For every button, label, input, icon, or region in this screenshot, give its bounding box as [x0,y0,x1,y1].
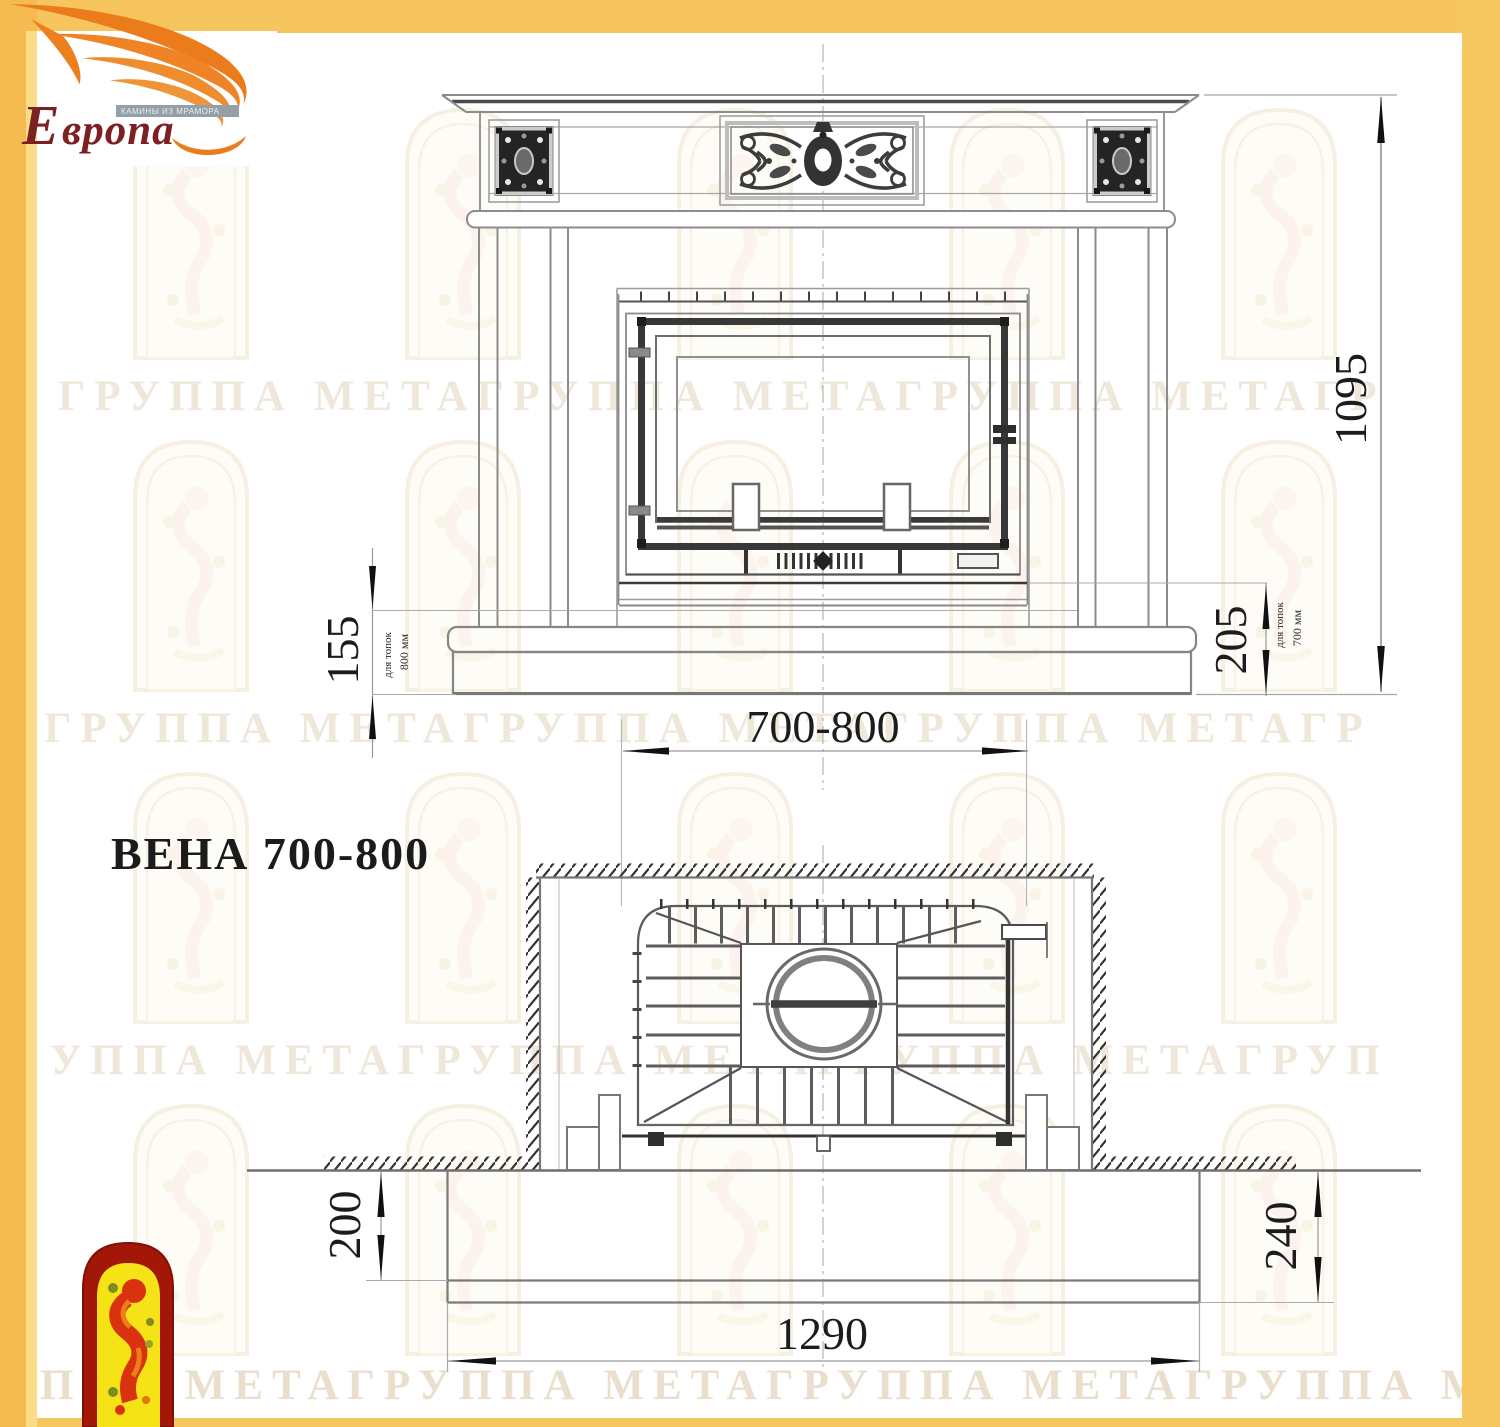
svg-text:для топок: для топок [1274,601,1286,647]
svg-text:700 мм: 700 мм [1290,610,1304,647]
svg-text:1095: 1095 [1325,353,1376,445]
svg-text:155: 155 [317,616,368,685]
svg-text:1290: 1290 [776,1308,868,1359]
svg-text:205: 205 [1205,606,1256,675]
svg-text:240: 240 [1255,1202,1306,1271]
svg-text:для топок: для топок [382,631,394,677]
svg-text:200: 200 [319,1191,370,1260]
svg-text:800 мм: 800 мм [397,634,411,671]
svg-text:УППА МЕТАГРУППА МЕТАГРУППА МЕТ: УППА МЕТАГРУППА МЕТАГРУППА МЕТАГРУП [50,1037,1389,1084]
svg-text:ГРУППА МЕТАГРУППА МЕТАГРУППА М: ГРУППА МЕТАГРУППА МЕТАГРУППА МЕТАГР [58,373,1386,420]
svg-text:700-800: 700-800 [746,701,899,752]
svg-text:ГРУППА МЕТАГРУППА МЕТАГРУППА М: ГРУППА МЕТАГРУППА МЕТАГРУППА МЕТАГР [44,705,1372,752]
svg-text:ППА МЕТАГРУППА МЕТАГРУППА МЕТА: ППА МЕТАГРУППА МЕТАГРУППА МЕТАГРУППА МЕТ… [40,1362,1500,1409]
svg-text:Е: Е [21,95,59,157]
svg-text:ВЕНА 700-800: ВЕНА 700-800 [111,828,430,879]
svg-text:КАМИНЫ ИЗ МРАМОРА: КАМИНЫ ИЗ МРАМОРА [121,107,220,116]
